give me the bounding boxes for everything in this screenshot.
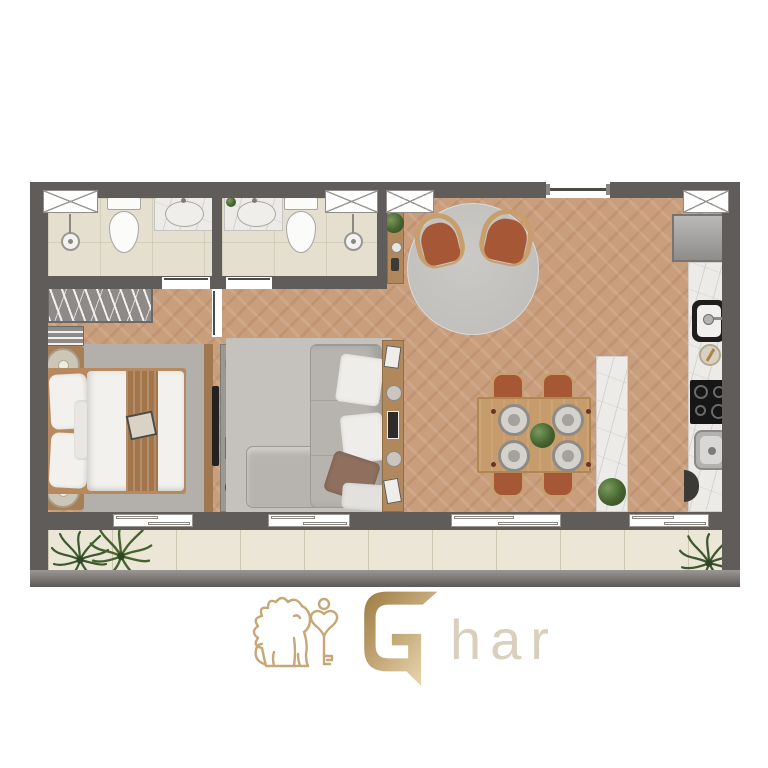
wall-right (722, 182, 740, 587)
dining-chair-3 (492, 470, 524, 497)
shower-head-2 (344, 232, 363, 251)
lion-with-key-icon (250, 594, 354, 674)
entry-door-jamb-left (546, 184, 550, 195)
bedroom-door (212, 289, 222, 337)
logo-g-mark (354, 590, 446, 686)
entry-door-jamb-right (606, 184, 610, 195)
back-console-bowl-2 (386, 451, 402, 467)
vanity-2-faucet (252, 198, 257, 203)
vanity-2-plant (226, 197, 236, 207)
entry-door-leaf (550, 188, 606, 191)
vanity-1-faucet (181, 198, 186, 203)
balcony-railing (30, 570, 740, 587)
bedroom-door-leaf (213, 291, 215, 335)
brand-logo: har (250, 590, 540, 682)
wardrobe-open (47, 284, 153, 323)
entry-console-decor (391, 258, 399, 271)
sofa-back-console (382, 340, 404, 512)
dining-chair-4 (542, 470, 574, 497)
burner-1 (694, 385, 708, 399)
shower-hose-2 (352, 214, 354, 233)
bathroom-2-door (226, 277, 272, 289)
place-setting-4 (552, 440, 584, 472)
entry-console-dish (391, 242, 402, 253)
shelf-unit (47, 326, 84, 346)
window-lounge (386, 190, 434, 213)
wall-top (30, 182, 740, 198)
back-console-frame-1 (384, 345, 402, 369)
napkin-dot-2 (586, 409, 591, 414)
burner-3 (695, 405, 706, 416)
napkin-dot-3 (491, 462, 496, 467)
bathroom-2-door-leaf (228, 278, 270, 280)
wall-left (30, 182, 48, 587)
entry-console-plant (384, 213, 404, 233)
bathroom-1-door-leaf (164, 278, 208, 280)
table-centerpiece-plant (530, 423, 555, 448)
place-setting-2 (552, 404, 584, 436)
tv-screen (212, 386, 219, 466)
napkin-dot-1 (491, 409, 496, 414)
back-console-frame-2 (383, 478, 402, 504)
napkin-dot-4 (586, 462, 591, 467)
island-plant (598, 478, 626, 506)
balcony-slider-bedroom (113, 514, 193, 527)
logo-g-path (364, 592, 437, 686)
shower-hose-1 (69, 214, 71, 233)
place-setting-3 (498, 440, 530, 472)
wall-bathrooms-south (48, 276, 378, 289)
kitchen-sink-main (692, 300, 726, 342)
toilet-1 (107, 197, 141, 253)
balcony-slider-dining (451, 514, 561, 527)
mortar-pestle (706, 348, 716, 362)
wall-bathroom-divider (212, 198, 222, 276)
back-console-art (387, 411, 399, 439)
sofa-pillow-white-1 (335, 353, 385, 407)
floorplan-page: har (0, 0, 768, 768)
entry-door-opening (546, 182, 610, 198)
window-bathroom-1 (43, 190, 98, 213)
mortar-decor (699, 344, 721, 366)
balcony-slider-living (268, 514, 350, 527)
dining-chair-1 (492, 373, 524, 400)
dining-chair-2 (542, 373, 574, 400)
bathroom-1-door (162, 277, 210, 289)
kitchen-faucet-base (703, 314, 714, 325)
refrigerator (672, 214, 724, 262)
balcony-slider-kitchen (629, 514, 709, 527)
second-sink-faucet (708, 447, 716, 455)
window-bathroom-2 (325, 190, 378, 213)
shower-head-1 (61, 232, 80, 251)
vanity-2-basin (237, 201, 276, 227)
back-console-bowl-1 (386, 385, 402, 401)
logo-suffix-text: har (450, 612, 558, 668)
toilet-2 (284, 197, 318, 253)
place-setting-1 (498, 404, 530, 436)
window-kitchen (683, 190, 729, 213)
vanity-1-basin (165, 201, 204, 227)
